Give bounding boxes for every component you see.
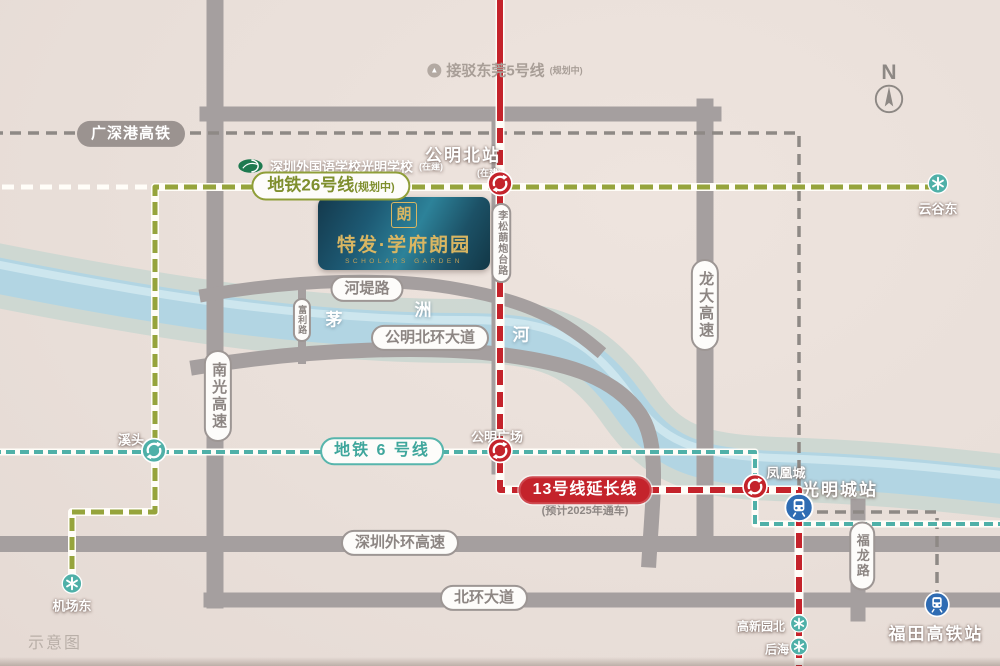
dongguan-line5-status: (规划中): [550, 64, 583, 77]
road-label-hedi: 河堤路: [330, 276, 403, 302]
station-futian-train-icon: [924, 591, 951, 623]
dongguan-line5-connection: ▲ 接驳东莞5号线 (规划中): [427, 60, 582, 81]
hsr-label-pill: 广深港高铁: [77, 121, 185, 147]
line6-label-pill: 地铁 6 号线: [320, 437, 444, 465]
up-arrow-icon: ▲: [427, 63, 441, 77]
station-yungudong-label: 云谷东: [918, 199, 957, 218]
station-jichangdong-metro-icon: [61, 572, 84, 600]
station-futian-label: 福田高铁站: [889, 620, 984, 645]
station-xitou-interchange-icon: [141, 437, 168, 469]
station-fenghuangcheng-interchange-icon: [742, 473, 769, 505]
station-yungudong-metro-icon: [927, 172, 950, 200]
line26-label: 地铁26号线: [267, 176, 354, 195]
dongguan-line5-label: 接驳东莞5号线: [446, 60, 544, 81]
station-gaoxinyuanbei-metro-icon: [789, 614, 809, 639]
compass: N: [870, 65, 908, 115]
road-label-longda: 龙大高速: [691, 259, 719, 351]
river-char-mao: 茅: [326, 306, 343, 331]
project-name: 特发·学府朗园: [337, 230, 471, 257]
road-label-outer-ring: 深圳外环高速: [341, 530, 459, 556]
river-char-he: 河: [513, 321, 530, 346]
river-char-zhou: 洲: [415, 296, 432, 321]
project-name-en: SCHOLARS GARDEN: [345, 258, 463, 265]
station-fenghuangcheng-label: 凤凰城: [766, 463, 805, 482]
compass-needle-icon: [870, 81, 908, 115]
road-label-fulong: 福龙路: [849, 522, 875, 591]
station-gongmingbei-interchange-icon: [487, 170, 514, 202]
station-houhai-label: 后海: [765, 641, 789, 658]
station-guangmingcheng-train-icon: [784, 492, 815, 528]
road-label-lisonglang: 李松蓢炮台路: [491, 203, 511, 283]
road-label-gongming-ring: 公明北环大道: [371, 325, 489, 351]
schematic-note: 示意图: [28, 629, 82, 653]
road-label-beihuan: 北环大道: [440, 585, 528, 611]
schematic-location-map: ▲ 接驳东莞5号线 (规划中) N 广深港高铁 深圳外国语学校光明学校 (在建)…: [0, 0, 1000, 666]
road-label-fuli: 富利路: [293, 298, 311, 342]
line26-status: (规划中): [354, 182, 394, 194]
station-gaoxinyuanbei-label: 高新园北: [737, 618, 785, 635]
project-logo-card: 朗 特发·学府朗园 SCHOLARS GARDEN: [318, 197, 490, 270]
line13-status: (预计2025年通车): [542, 502, 629, 518]
compass-north-label: N: [881, 65, 896, 81]
station-gongming-square-interchange-icon: [487, 437, 514, 469]
station-houhai-metro-icon: [789, 637, 809, 662]
project-seal-icon: 朗: [391, 202, 417, 228]
road-label-nanguang: 南光高速: [204, 350, 232, 442]
line13-label-pill: 13号线延长线: [519, 476, 652, 504]
line26-label-pill: 地铁26号线(规划中): [251, 172, 410, 201]
station-gongmingbei-name: 公明北站: [425, 146, 501, 165]
